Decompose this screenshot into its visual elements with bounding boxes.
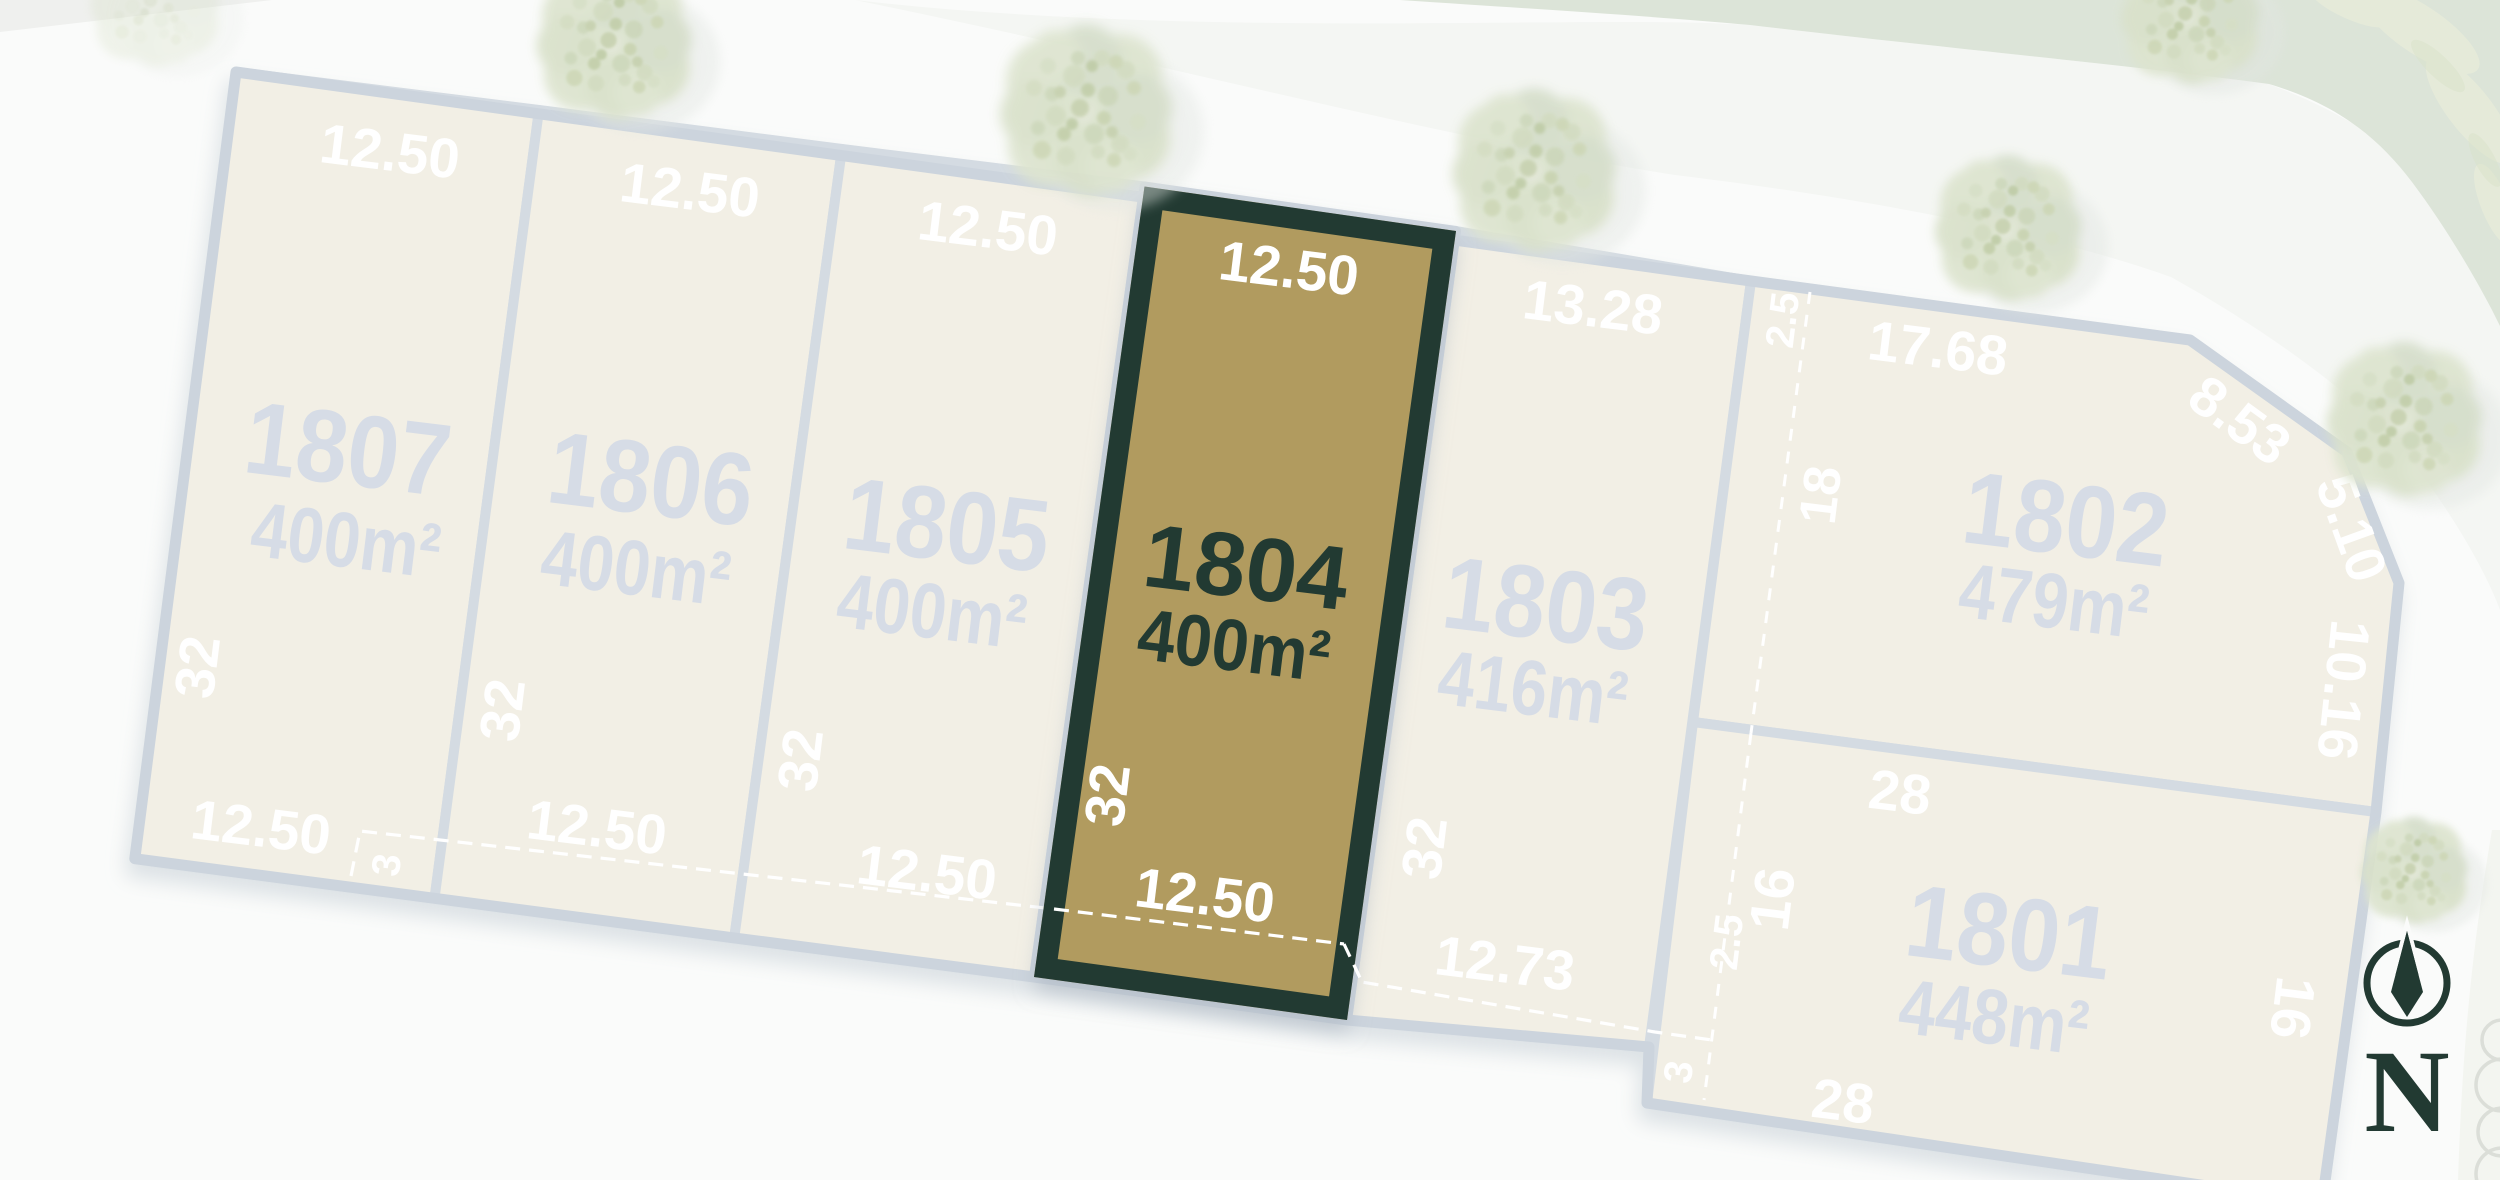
svg-text:N: N xyxy=(2364,1026,2449,1157)
svg-text:18: 18 xyxy=(1789,463,1854,527)
svg-text:2.5: 2.5 xyxy=(1758,290,1808,351)
svg-text:32: 32 xyxy=(162,632,232,702)
svg-text:2.5: 2.5 xyxy=(1702,912,1752,973)
svg-text:16: 16 xyxy=(2258,973,2328,1043)
svg-text:32: 32 xyxy=(467,675,537,745)
svg-text:28: 28 xyxy=(1865,757,1935,827)
svg-text:28: 28 xyxy=(1808,1066,1878,1136)
svg-text:32: 32 xyxy=(1389,813,1459,883)
svg-text:32: 32 xyxy=(765,725,835,795)
svg-text:32: 32 xyxy=(1072,760,1142,830)
